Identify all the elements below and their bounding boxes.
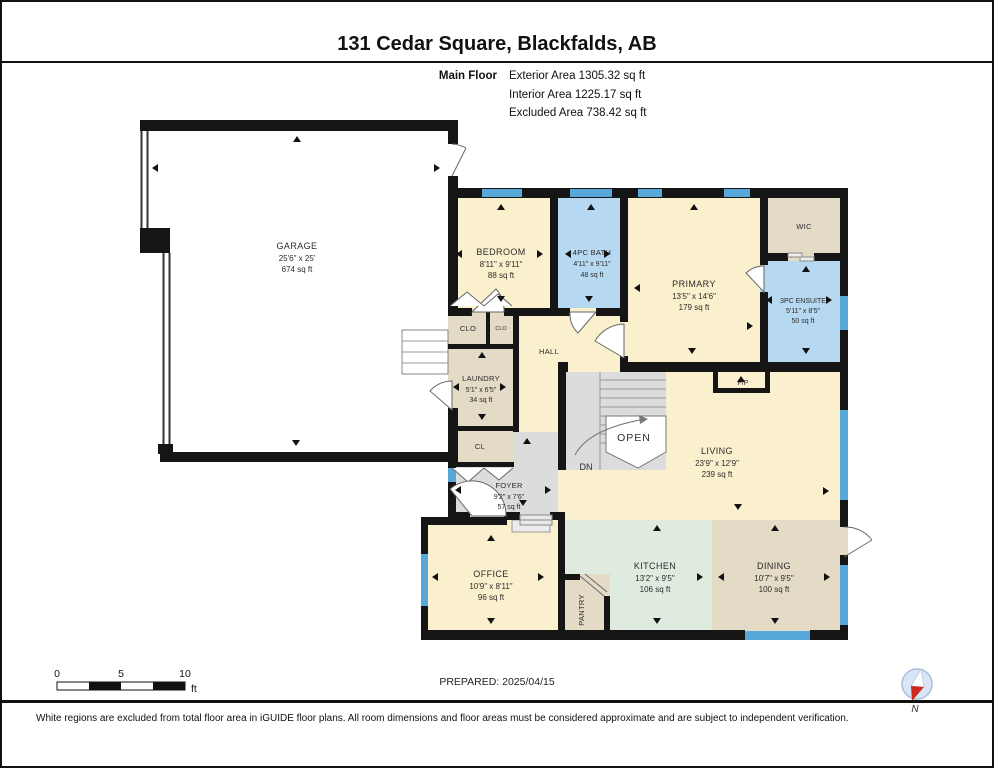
open-label: OPEN <box>617 432 651 444</box>
office-label: OFFICE <box>473 569 508 579</box>
exterior-area: Exterior Area 1305.32 sq ft <box>509 70 646 82</box>
svg-text:50 sq ft: 50 sq ft <box>792 318 815 325</box>
svg-text:9'2" x 7'6": 9'2" x 7'6" <box>494 494 525 501</box>
footer: 0 5 10 ft PREPARED: 2025/04/15 N White r… <box>2 668 992 724</box>
svg-text:96 sq ft: 96 sq ft <box>478 593 505 602</box>
svg-text:674 sq ft: 674 sq ft <box>282 265 313 274</box>
header: 131 Cedar Square, Blackfalds, AB Main Fl… <box>2 33 992 119</box>
svg-text:5: 5 <box>118 668 124 680</box>
svg-text:5'1" x 6'5": 5'1" x 6'5" <box>466 387 497 394</box>
prepared-date: PREPARED: 2025/04/15 <box>439 676 555 688</box>
hall-label: HALL <box>539 347 559 356</box>
svg-text:57 sq ft: 57 sq ft <box>498 504 521 511</box>
ensuite-label: 3PC ENSUITE <box>780 298 826 305</box>
footer-divider <box>2 700 992 703</box>
scale-bar: 0 5 10 ft <box>54 668 197 695</box>
svg-text:10'9" x 8'11": 10'9" x 8'11" <box>469 582 512 591</box>
primary-window-2 <box>724 189 750 197</box>
wic-label: WIC <box>796 222 812 231</box>
svg-text:25'6" x 25': 25'6" x 25' <box>279 254 316 263</box>
svg-text:ft: ft <box>191 683 197 695</box>
page-title: 131 Cedar Square, Blackfalds, AB <box>337 33 656 55</box>
room-garage <box>140 120 458 462</box>
interior-area: Interior Area 1225.17 sq ft <box>509 89 642 101</box>
laundry-label: LAUNDRY <box>462 374 500 383</box>
clo-a-label: CLO <box>460 324 476 333</box>
primary-label: PRIMARY <box>672 279 716 289</box>
svg-text:88 sq ft: 88 sq ft <box>488 271 515 280</box>
svg-text:239 sq ft: 239 sq ft <box>702 470 733 479</box>
floor-label: Main Floor <box>439 70 498 82</box>
foyer-label: FOYER <box>495 481 523 490</box>
bedroom-label: BEDROOM <box>476 247 525 257</box>
pantry-label: PANTRY <box>577 594 586 626</box>
down-label: DN <box>580 462 593 472</box>
dining-window-side <box>840 565 848 625</box>
garage-label: GARAGE <box>277 241 318 251</box>
living-window <box>840 410 848 500</box>
svg-text:0: 0 <box>54 668 60 680</box>
bedroom-window <box>482 189 522 197</box>
compass-n-label: N <box>911 704 919 715</box>
disclaimer: White regions are excluded from total fl… <box>36 713 849 724</box>
svg-text:13'2" x 9'5": 13'2" x 9'5" <box>635 574 675 583</box>
header-divider <box>2 61 992 63</box>
svg-text:179 sq ft: 179 sq ft <box>679 303 710 312</box>
svg-text:4'11" x 9'11": 4'11" x 9'11" <box>573 261 611 268</box>
floorplan-canvas: 131 Cedar Square, Blackfalds, AB Main Fl… <box>0 0 994 768</box>
dining-exterior-door <box>844 527 872 557</box>
primary-window-1 <box>638 189 662 197</box>
room-ensuite <box>760 261 848 372</box>
floorplan-page: 131 Cedar Square, Blackfalds, AB Main Fl… <box>0 0 994 768</box>
compass-icon: N <box>902 669 932 715</box>
svg-text:23'9" x 12'9": 23'9" x 12'9" <box>695 459 739 468</box>
ensuite-window <box>840 296 848 330</box>
wic-sliding-door <box>788 253 802 257</box>
svg-text:5'11" x 8'5": 5'11" x 8'5" <box>786 308 820 315</box>
living-label: LIVING <box>701 446 733 456</box>
bath-window <box>570 189 612 197</box>
svg-text:10'7" x 9'5": 10'7" x 9'5" <box>754 574 794 583</box>
svg-text:100 sq ft: 100 sq ft <box>759 585 790 594</box>
dining-window-bottom <box>745 631 810 640</box>
office-window <box>421 554 428 606</box>
kitchen-label: KITCHEN <box>634 561 676 571</box>
dining-label: DINING <box>757 561 791 571</box>
svg-text:10: 10 <box>179 668 191 680</box>
svg-text:34 sq ft: 34 sq ft <box>470 397 493 404</box>
svg-text:13'5" x 14'6": 13'5" x 14'6" <box>672 292 716 301</box>
svg-text:48 sq ft: 48 sq ft <box>581 272 604 279</box>
svg-text:8'11" x 9'11": 8'11" x 9'11" <box>480 260 523 269</box>
svg-text:106 sq ft: 106 sq ft <box>640 585 671 594</box>
clo-b-label: CLO <box>495 326 507 332</box>
cl-label: CL <box>475 442 485 451</box>
excluded-area: Excluded Area 738.42 sq ft <box>509 107 647 119</box>
